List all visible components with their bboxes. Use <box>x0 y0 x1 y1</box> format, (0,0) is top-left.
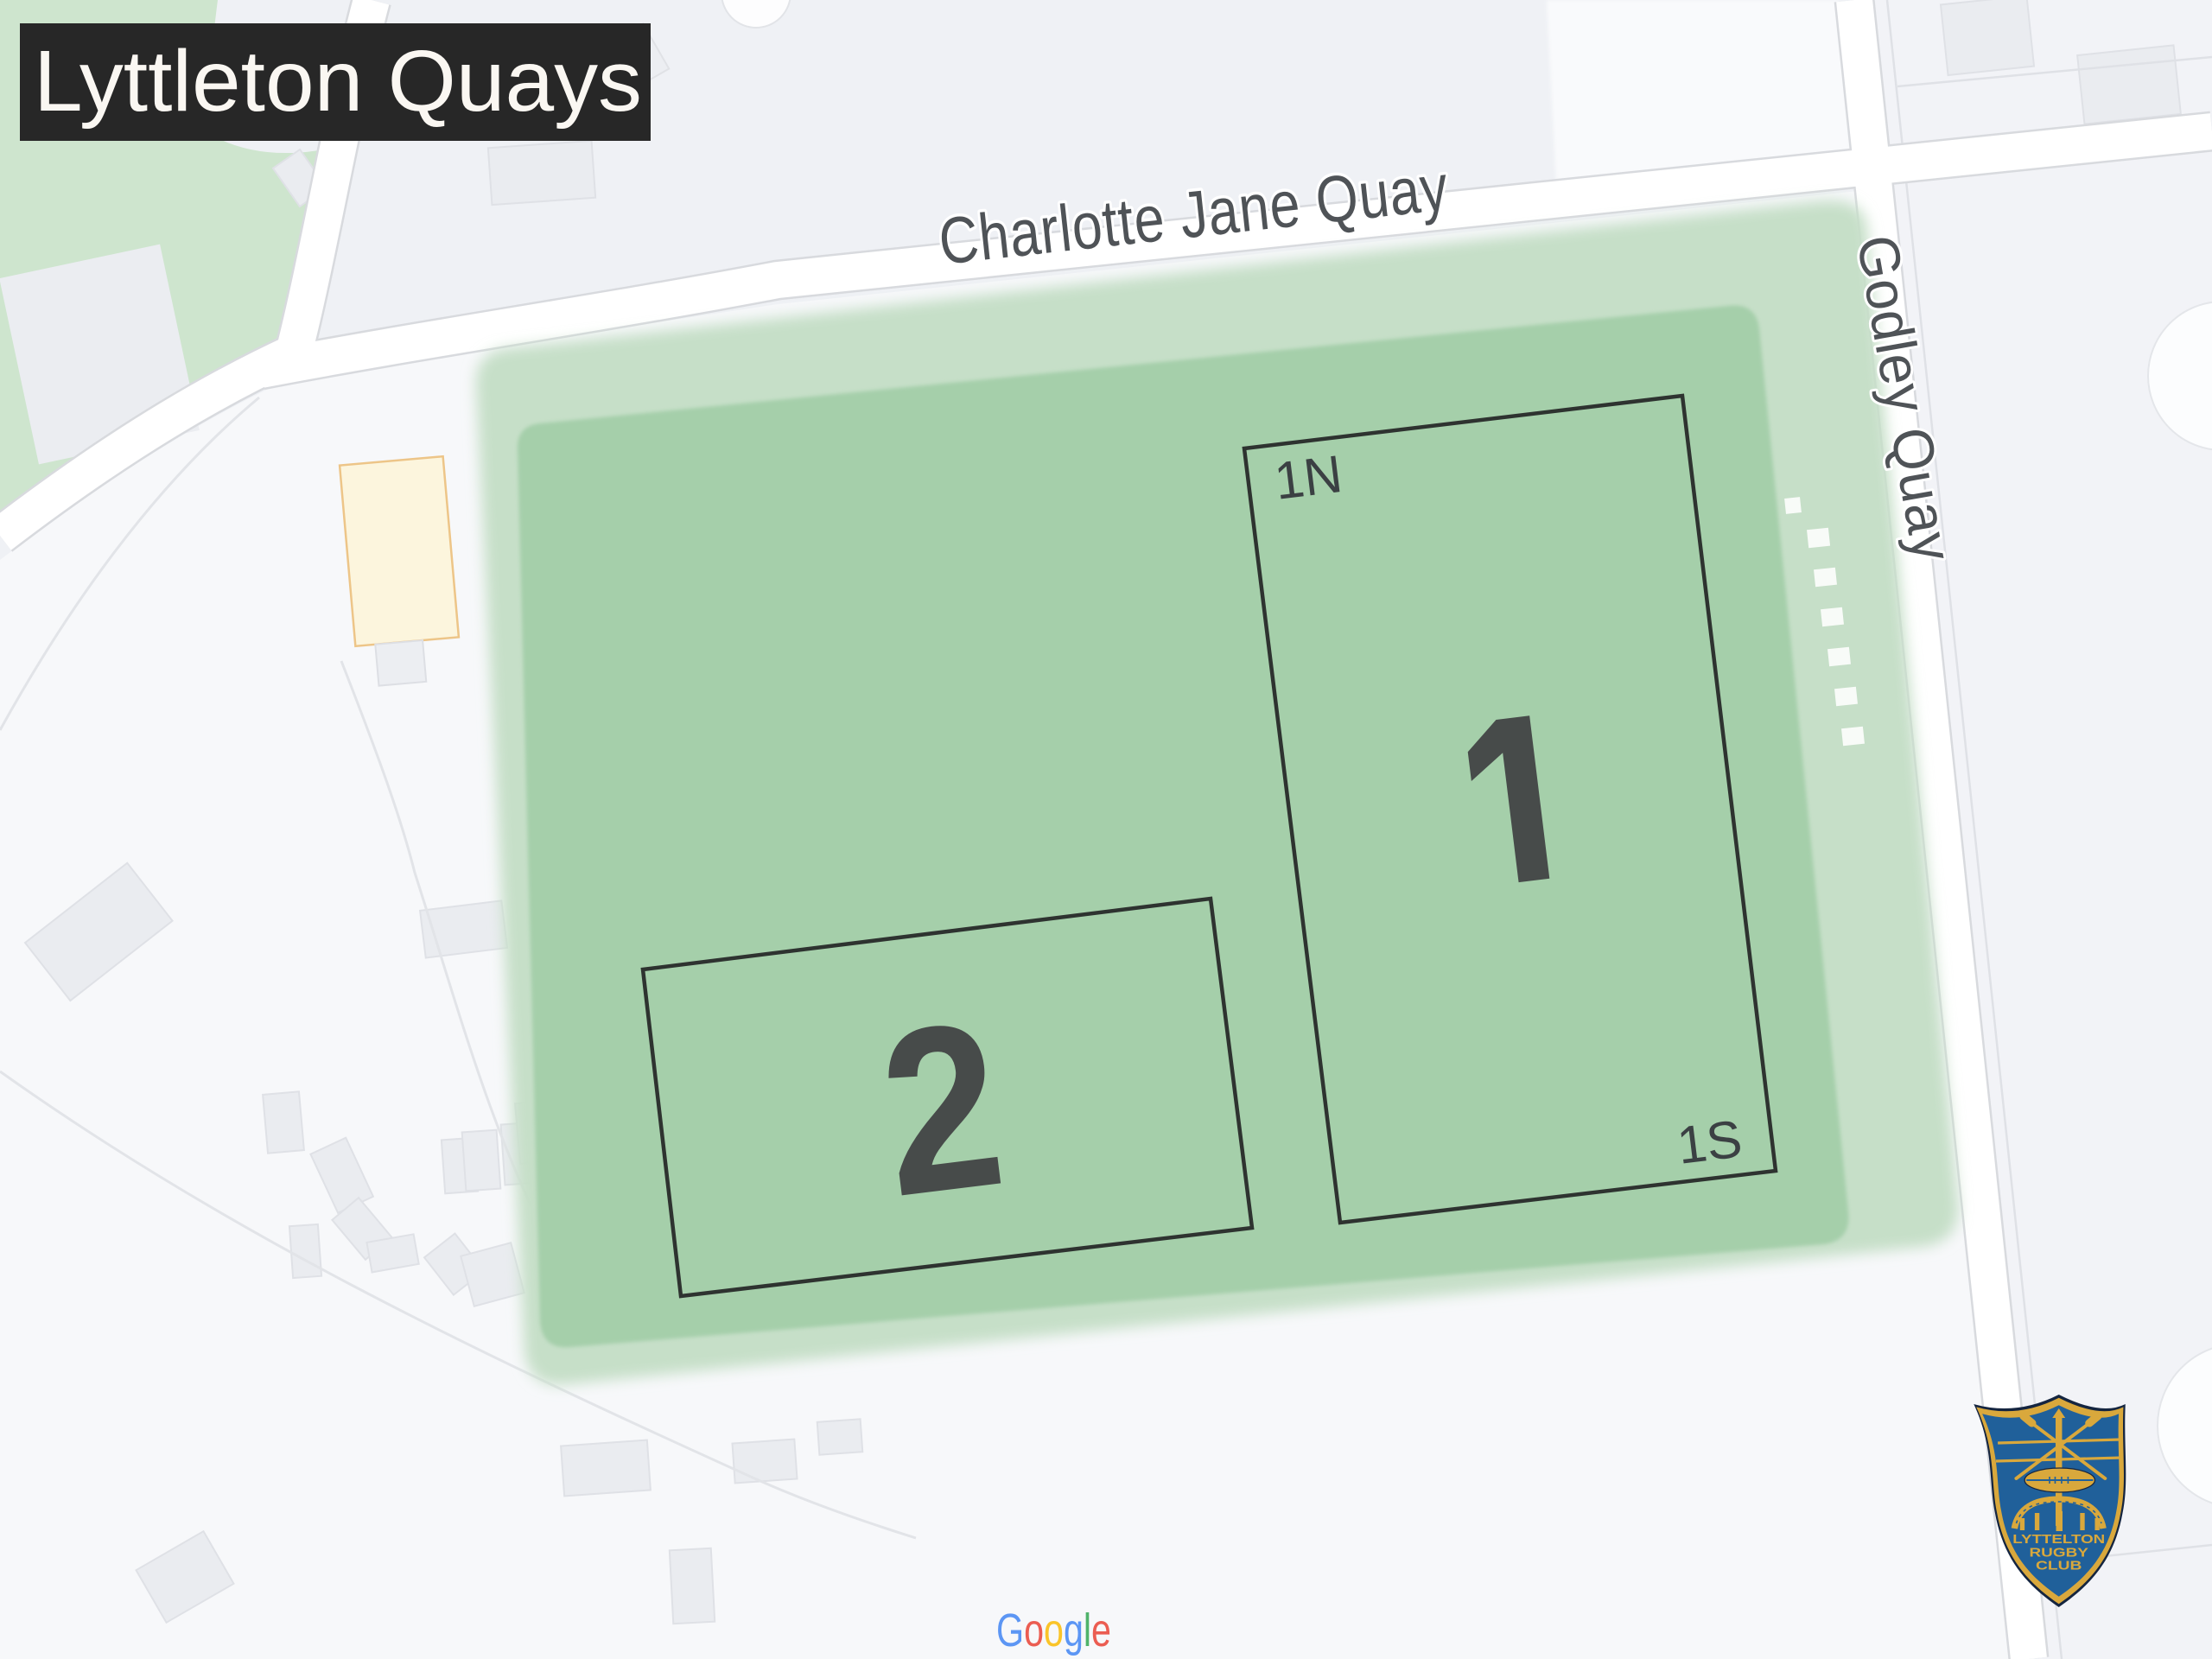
svg-text:Lyttleton Quays: Lyttleton Quays <box>34 33 642 130</box>
svg-text:RUGBY: RUGBY <box>2029 1546 2088 1560</box>
svg-text:1S: 1S <box>1674 1109 1745 1175</box>
svg-text:CLUB: CLUB <box>2036 1559 2082 1573</box>
svg-text:1N: 1N <box>1271 444 1345 511</box>
svg-text:Google: Google <box>996 1605 1111 1656</box>
svg-text:LYTTELTON: LYTTELTON <box>2012 1532 2105 1546</box>
